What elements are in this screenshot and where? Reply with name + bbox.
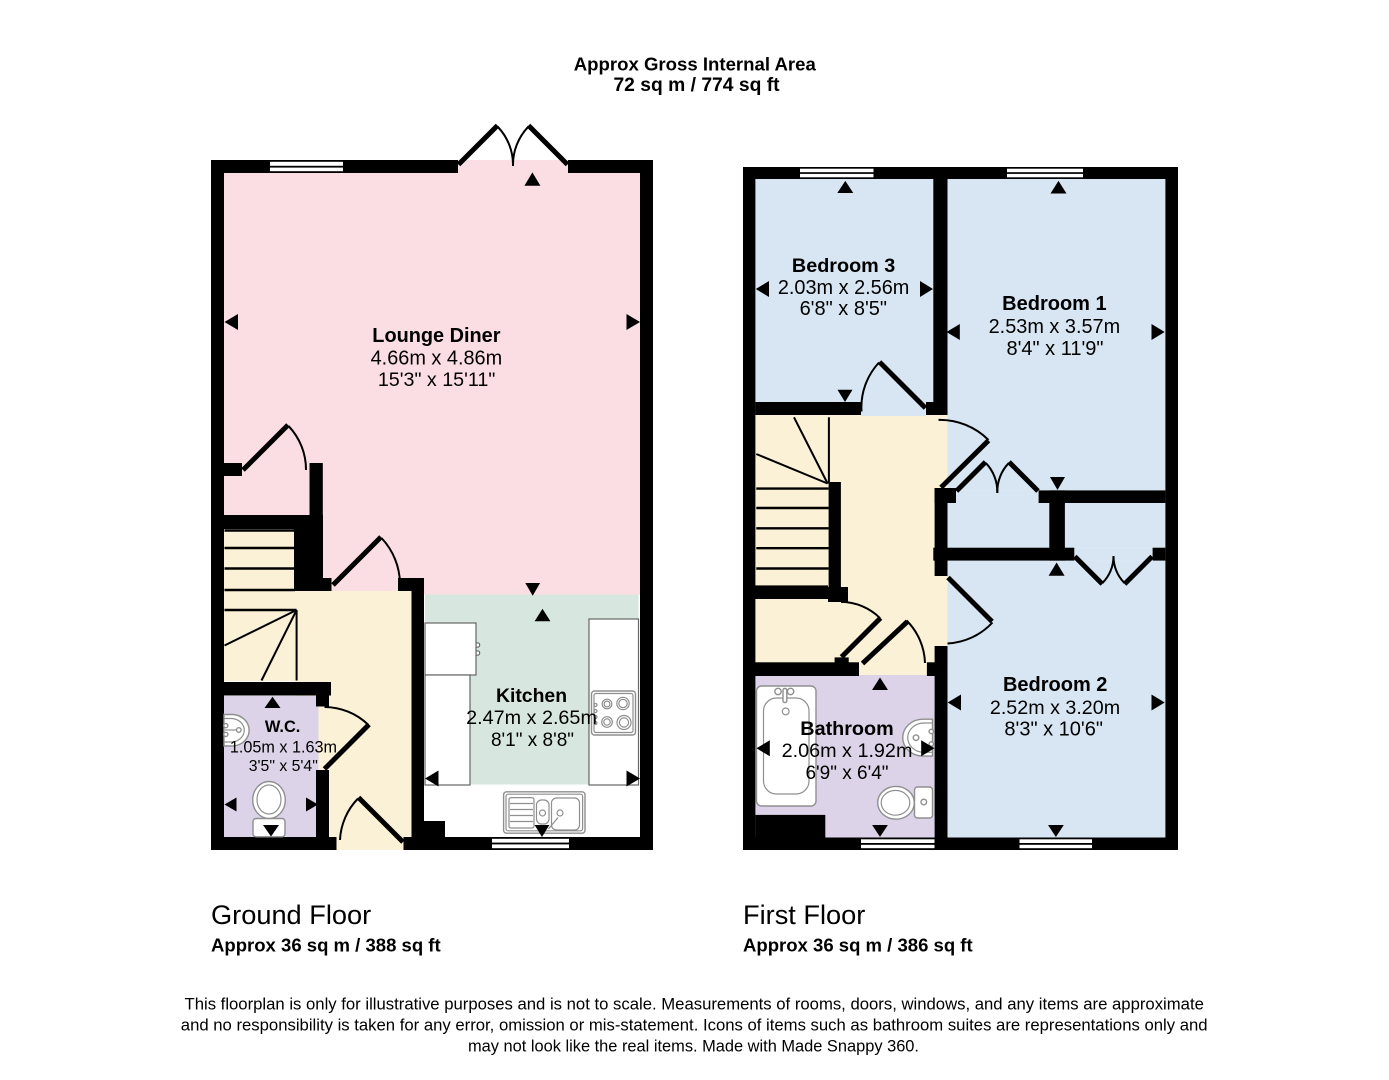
svg-text:Lounge Diner: Lounge Diner	[372, 325, 500, 347]
svg-text:2.06m x 1.92m: 2.06m x 1.92m	[782, 740, 913, 762]
svg-text:Approx 36 sq m / 388 sq ft: Approx 36 sq m / 388 sq ft	[211, 935, 441, 956]
svg-text:8'3" x 10'6": 8'3" x 10'6"	[1004, 719, 1103, 741]
svg-text:8'1" x 8'8": 8'1" x 8'8"	[491, 730, 574, 751]
svg-text:72 sq m / 774 sq ft: 72 sq m / 774 sq ft	[613, 75, 780, 96]
svg-text:This floorplan is only for ill: This floorplan is only for illustrative …	[185, 995, 1204, 1014]
svg-text:2.03m x 2.56m: 2.03m x 2.56m	[778, 277, 910, 299]
svg-text:First Floor: First Floor	[743, 899, 865, 930]
svg-text:2.47m x 2.65m: 2.47m x 2.65m	[466, 707, 597, 729]
svg-text:Kitchen: Kitchen	[496, 685, 567, 707]
svg-text:1.05m x 1.63m: 1.05m x 1.63m	[230, 739, 337, 757]
svg-text:Approx Gross Internal Area: Approx Gross Internal Area	[574, 54, 817, 75]
svg-text:Bedroom 1: Bedroom 1	[1002, 293, 1106, 315]
svg-text:W.C.: W.C.	[265, 718, 301, 736]
svg-text:Bathroom: Bathroom	[800, 718, 893, 740]
svg-text:6'9" x 6'4": 6'9" x 6'4"	[805, 763, 888, 784]
svg-text:3'5" x 5'4": 3'5" x 5'4"	[249, 758, 318, 775]
svg-text:Ground Floor: Ground Floor	[211, 899, 371, 930]
svg-text:8'4" x 11'9": 8'4" x 11'9"	[1006, 338, 1103, 360]
svg-text:Bedroom 2: Bedroom 2	[1003, 674, 1107, 696]
svg-text:2.53m x 3.57m: 2.53m x 3.57m	[989, 316, 1121, 338]
svg-text:Bedroom 3: Bedroom 3	[792, 255, 895, 277]
svg-text:Approx 36 sq m / 386 sq ft: Approx 36 sq m / 386 sq ft	[743, 935, 973, 956]
svg-text:and no responsibility is taken: and no responsibility is taken for any e…	[181, 1016, 1208, 1035]
svg-text:15'3" x 15'11": 15'3" x 15'11"	[378, 369, 495, 391]
svg-text:6'8" x 8'5": 6'8" x 8'5"	[800, 298, 887, 320]
svg-text:2.52m x 3.20m: 2.52m x 3.20m	[990, 697, 1120, 719]
svg-text:may not look like the real ite: may not look like the real items. Made w…	[468, 1038, 919, 1056]
svg-text:4.66m x 4.86m: 4.66m x 4.86m	[371, 348, 503, 370]
